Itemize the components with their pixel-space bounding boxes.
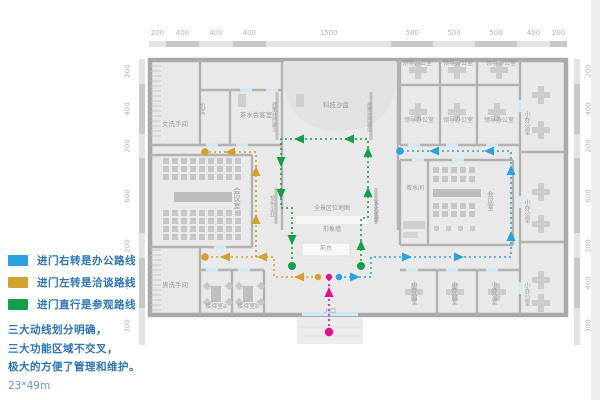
conference-seat (172, 166, 178, 172)
room-label-small_office: 小办公室 (523, 188, 529, 234)
conference-seat (163, 226, 169, 232)
conference-seat (469, 167, 475, 173)
conference-seat (235, 166, 241, 172)
note-line-3: 极大的方便了管理和维护。 (8, 358, 158, 377)
conference-seat (199, 174, 205, 180)
conference-seat (217, 218, 223, 224)
office-desk (538, 86, 544, 104)
legend-row-visit: 进门直行是参观路线 (8, 293, 158, 315)
conference-seat (442, 176, 448, 182)
room-label-advantage_wall: 五大优势 (372, 194, 378, 228)
conference-seat (451, 211, 457, 217)
room-label-small_office: 小办公室 (523, 273, 529, 315)
room-label-leader_office: 领导办公室 (438, 61, 478, 68)
conference-seat (442, 211, 448, 217)
talk-route-swatch-icon (8, 277, 28, 288)
conference-seat (226, 218, 232, 224)
route-dot (357, 262, 365, 270)
conference-seat (451, 167, 457, 173)
conference-seat (208, 158, 214, 164)
office-desk (538, 294, 544, 312)
conference-seat (163, 158, 169, 164)
office-desk (538, 271, 544, 289)
room-label-machine_room: 机房 (198, 96, 204, 122)
conference-seat (217, 166, 223, 172)
conference-seat (208, 166, 214, 172)
conference-seat (226, 210, 232, 216)
conference-seat (451, 203, 457, 209)
visit-route-swatch-icon (8, 299, 28, 310)
room-label-small_office: 小办公室 (490, 272, 496, 314)
conference-seat (433, 211, 439, 217)
conference-seat (199, 234, 205, 240)
conference-seat (226, 234, 232, 240)
conference-seat (181, 166, 187, 172)
room-label-policy_wall: 政策扶持展示 (271, 92, 276, 142)
room-label-map_wall: 全景区位地图 (302, 206, 362, 213)
room-label-meeting_room: 会议室 (233, 175, 241, 221)
conference-seat (172, 158, 178, 164)
conference-seat (217, 210, 223, 216)
room-label-leader_office: 领导办公室 (477, 118, 521, 125)
conference-seat (235, 226, 241, 232)
conference-seat (190, 166, 196, 172)
room-label-reception_a: 接待室a (200, 304, 232, 311)
conference-seat (217, 158, 223, 164)
conference-seat (181, 226, 187, 232)
conference-seat (433, 203, 439, 209)
room-label-women_wc: 女洗手间 (151, 121, 199, 128)
room-label-leader_office: 领导办公室 (479, 61, 523, 68)
tea-fixture (403, 232, 418, 238)
conference-seat (217, 226, 223, 232)
chair (446, 226, 451, 231)
room-label-leader_office: 领导办公室 (439, 118, 477, 125)
conference-seat (226, 226, 232, 232)
conference-seat (208, 234, 214, 240)
route-dot (396, 147, 404, 155)
office-desk (538, 183, 544, 201)
room-label-front_desk: 前台 (311, 246, 341, 253)
conference-seat (226, 158, 232, 164)
room-label-tea_reception: 茶水会客室 (226, 112, 286, 119)
conference-seat (469, 176, 475, 182)
route-dot (315, 274, 321, 280)
conference-seat (181, 174, 187, 180)
conference-table (433, 189, 481, 197)
legend-row-office: 进门右转是办公路线 (8, 249, 158, 271)
route-dot (325, 328, 333, 336)
office-desk (538, 215, 544, 233)
conference-seat (235, 158, 241, 164)
conference-seat (208, 218, 214, 224)
conference-seat (163, 174, 169, 180)
tea-fixture (403, 221, 425, 229)
room-label-leader_office: 领导办公室 (398, 118, 440, 125)
legend-office-label: 进门右转是办公路线 (37, 253, 136, 268)
conference-seat (199, 226, 205, 232)
conference-seat (163, 210, 169, 216)
conference-seat (217, 234, 223, 240)
conference-seat (460, 203, 466, 209)
conference-seat (460, 167, 466, 173)
chair (434, 226, 439, 231)
conference-seat (172, 218, 178, 224)
legend-visit-label: 进门直行是参观路线 (37, 297, 136, 312)
conference-seat (199, 166, 205, 172)
conference-seat (172, 226, 178, 232)
note-line-1: 三大动线划分明确， (8, 321, 158, 340)
conference-seat (199, 210, 205, 216)
room-label-men_wc: 男洗手间 (151, 282, 199, 289)
conference-seat (460, 176, 466, 182)
room-label-leading_wall: 龙头企业 (268, 187, 274, 225)
tea-fixture (238, 94, 246, 107)
room-label-tech_sandbox: 科技沙盘 (306, 102, 366, 109)
conference-seat (190, 174, 196, 180)
conference-seat (442, 167, 448, 173)
room-label-small_office: 小办公室 (523, 100, 529, 146)
room-label-image_wall: 形象墙 (309, 227, 355, 234)
room-label-entrance: 入口 (318, 309, 342, 316)
conference-seat (181, 234, 187, 240)
chair (470, 226, 475, 231)
conference-seat (172, 210, 178, 216)
conference-seat (181, 158, 187, 164)
conference-seat (442, 203, 448, 209)
conference-seat (208, 210, 214, 216)
conference-seat (181, 218, 187, 224)
conference-seat (190, 226, 196, 232)
conference-seat (208, 226, 214, 232)
tea-fixture (296, 94, 304, 107)
conference-seat (172, 174, 178, 180)
conference-seat (460, 211, 466, 217)
conference-seat (235, 234, 241, 240)
office-desk (538, 121, 544, 139)
conference-seat (199, 218, 205, 224)
floorplan-diagram: 2004004004001500500500500400200 20040020… (0, 0, 600, 400)
map-wall-bar (296, 216, 368, 224)
route-dot (201, 148, 209, 156)
room-label-small_office: 小办公室 (450, 272, 456, 314)
conference-seat (181, 210, 187, 216)
conference-seat (433, 176, 439, 182)
route-dot (288, 262, 296, 270)
conference-seat (217, 174, 223, 180)
room-label-small_office: 小办公室 (410, 272, 416, 314)
conference-seat (433, 167, 439, 173)
chair (458, 226, 463, 231)
room-label-policy_wall: 政策扶持展示 (366, 92, 371, 142)
route-dot (201, 253, 209, 261)
route-dot (326, 274, 332, 280)
conference-seat (163, 166, 169, 172)
reception-table (211, 286, 221, 302)
conference-seat (190, 158, 196, 164)
legend-row-talk: 进门左转是洽谈路线 (8, 271, 158, 293)
room-label-tea_room: 茶水间 (397, 186, 433, 193)
reception-table (243, 286, 253, 302)
conference-seat (199, 158, 205, 164)
route-dot (336, 274, 342, 280)
conference-seat (163, 234, 169, 240)
conference-seat (172, 234, 178, 240)
office-route-swatch-icon (8, 255, 28, 266)
legend-talk-label: 进门左转是洽谈路线 (37, 275, 136, 290)
plan-size-label: 23*49m (8, 380, 158, 392)
conference-seat (190, 234, 196, 240)
conference-seat (451, 176, 457, 182)
room-label-leader_office: 领导办公室 (396, 61, 438, 68)
conference-seat (190, 210, 196, 216)
room-label-reception_b: 接待室b (232, 304, 264, 311)
conference-seat (208, 174, 214, 180)
conference-seat (190, 218, 196, 224)
legend: 进门右转是办公路线 进门左转是洽谈路线 进门直行是参观路线 三大动线划分明确， … (8, 249, 158, 392)
conference-seat (469, 211, 475, 217)
conference-table (174, 192, 232, 202)
conference-seat (163, 218, 169, 224)
room-label-meeting_room2: 会议室 (486, 182, 493, 220)
conference-seat (226, 166, 232, 172)
conference-seat (226, 174, 232, 180)
note-line-2: 三大功能区域不交叉， (8, 340, 158, 359)
conference-seat (469, 203, 475, 209)
